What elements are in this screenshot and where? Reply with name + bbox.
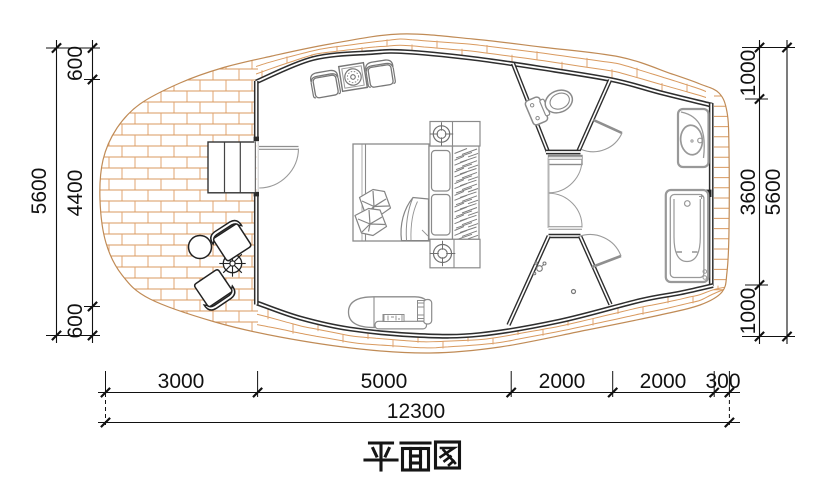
svg-text:2000: 2000: [539, 370, 586, 393]
svg-text:5600: 5600: [28, 168, 51, 215]
svg-text:300: 300: [705, 370, 740, 393]
svg-text:5600: 5600: [762, 169, 785, 216]
svg-text:3600: 3600: [737, 169, 760, 216]
svg-text:5000: 5000: [361, 370, 408, 393]
svg-text:1000: 1000: [737, 288, 760, 335]
svg-text:4400: 4400: [64, 170, 87, 217]
svg-text:1000: 1000: [737, 50, 760, 97]
svg-text:2000: 2000: [640, 370, 687, 393]
svg-text:600: 600: [64, 46, 87, 81]
svg-text:600: 600: [64, 303, 87, 338]
svg-text:3000: 3000: [158, 370, 205, 393]
svg-text:12300: 12300: [387, 400, 445, 423]
